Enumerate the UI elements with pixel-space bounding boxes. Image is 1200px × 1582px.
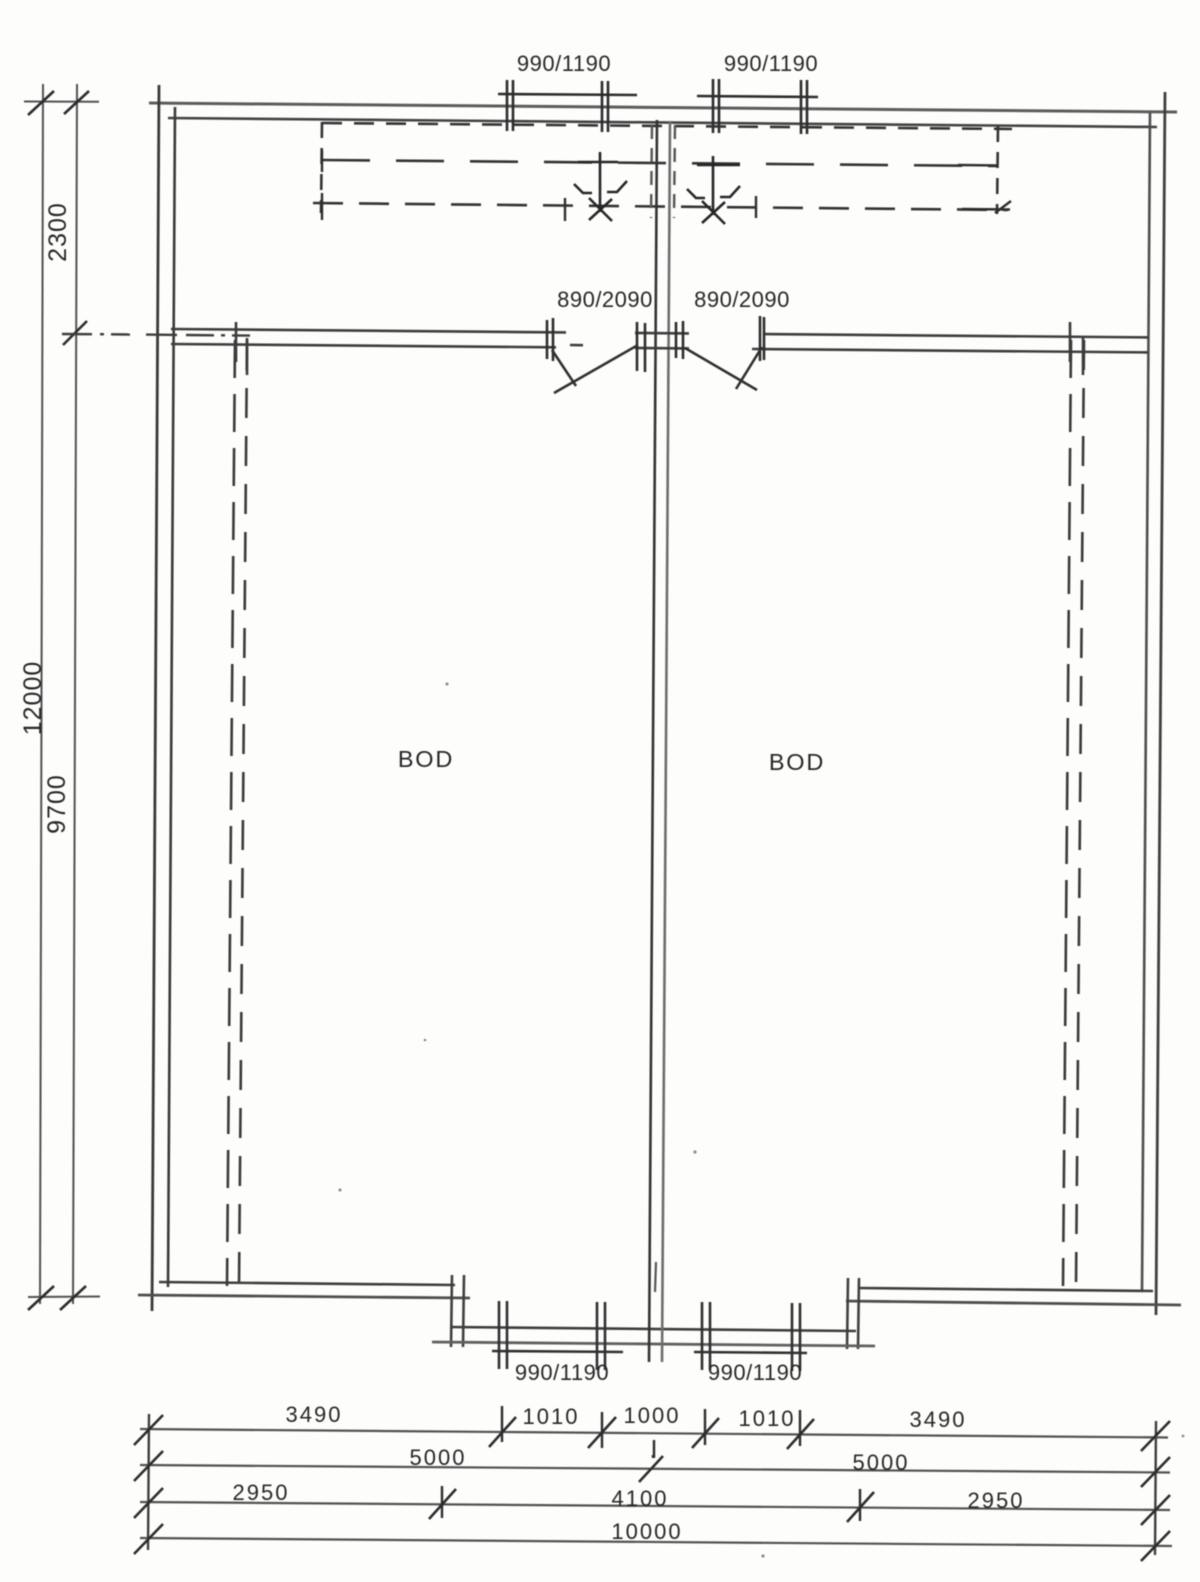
- svg-text:4100: 4100: [612, 1486, 669, 1511]
- svg-text:2950: 2950: [968, 1488, 1025, 1513]
- svg-text:890/2090: 890/2090: [557, 287, 653, 312]
- svg-text:1010: 1010: [739, 1406, 796, 1431]
- svg-text:5000: 5000: [410, 1445, 467, 1470]
- svg-text:990/1190: 990/1190: [515, 1360, 609, 1385]
- svg-text:2300: 2300: [44, 202, 72, 262]
- svg-text:990/1190: 990/1190: [708, 1360, 802, 1385]
- svg-text:3490: 3490: [910, 1407, 967, 1432]
- svg-text:890/2090: 890/2090: [694, 287, 790, 312]
- svg-text:2950: 2950: [233, 1480, 290, 1505]
- svg-text:9700: 9700: [43, 774, 71, 834]
- svg-text:12000: 12000: [19, 661, 47, 736]
- svg-text:990/1190: 990/1190: [724, 51, 818, 76]
- svg-text:10000: 10000: [611, 1519, 682, 1544]
- svg-text:3490: 3490: [286, 1402, 343, 1427]
- svg-text:1010: 1010: [523, 1404, 580, 1429]
- svg-text:1000: 1000: [624, 1403, 681, 1428]
- svg-text:BOD: BOD: [769, 749, 825, 775]
- svg-text:5000: 5000: [853, 1450, 910, 1475]
- svg-text:990/1190: 990/1190: [517, 51, 611, 76]
- svg-text:BOD: BOD: [398, 746, 454, 772]
